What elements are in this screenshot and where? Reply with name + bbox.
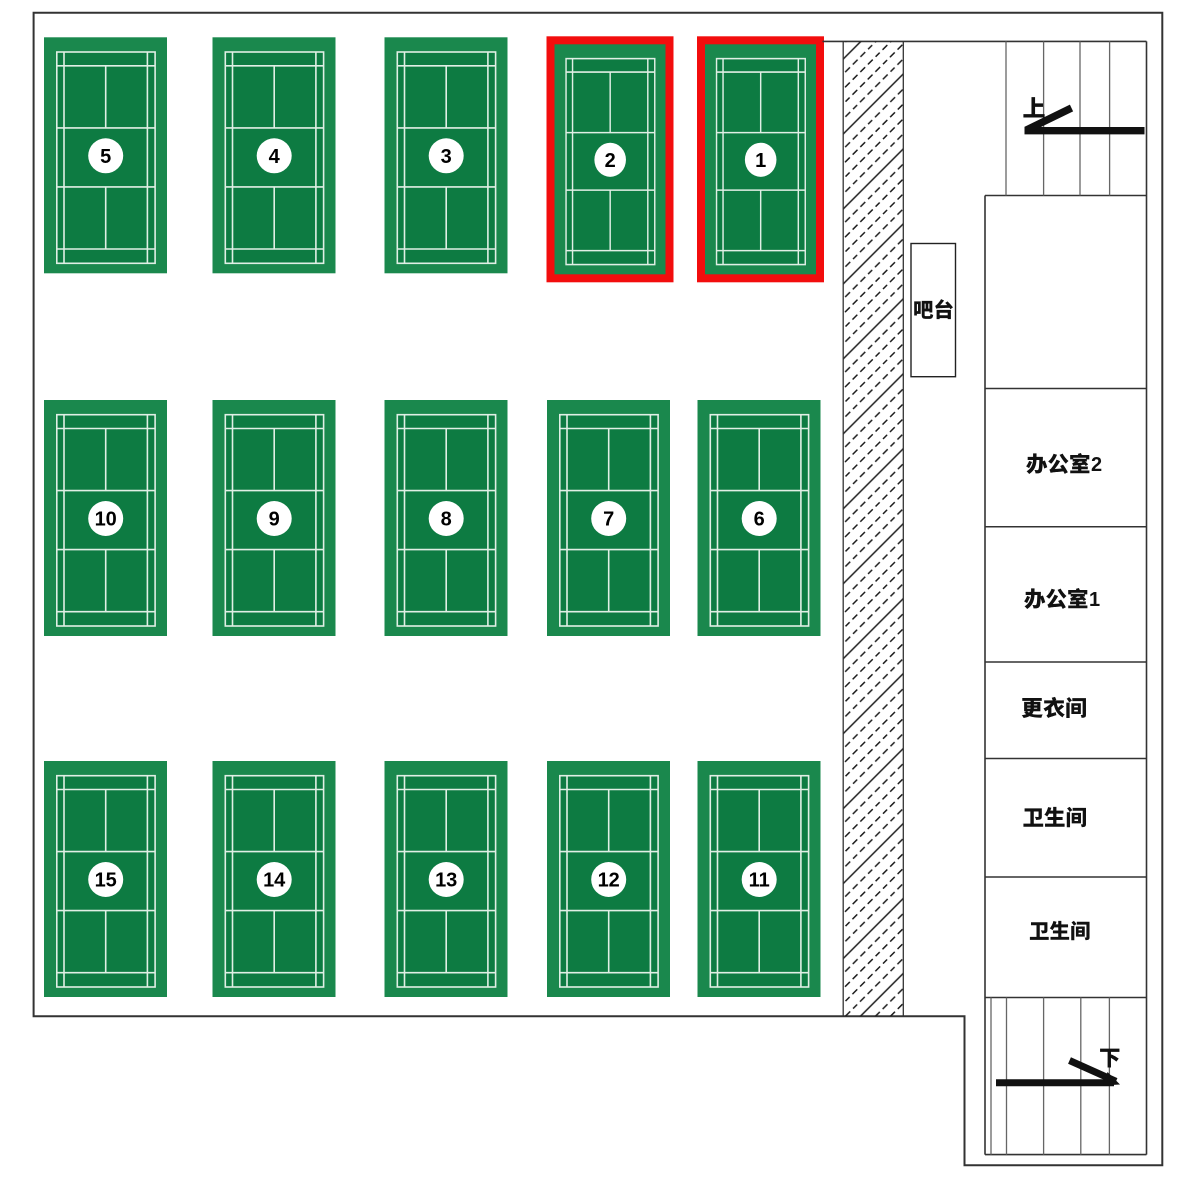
- svg-text:12: 12: [598, 870, 620, 892]
- svg-text:4: 4: [269, 146, 281, 168]
- svg-text:11: 11: [749, 870, 770, 892]
- svg-text:1: 1: [1089, 589, 1100, 611]
- svg-text:7: 7: [603, 509, 614, 531]
- svg-text:5: 5: [100, 146, 111, 168]
- svg-text:15: 15: [95, 870, 117, 892]
- svg-text:8: 8: [441, 509, 452, 531]
- svg-text:14: 14: [263, 870, 286, 892]
- svg-text:6: 6: [754, 509, 765, 531]
- svg-text:1: 1: [755, 150, 766, 172]
- svg-text:2: 2: [605, 150, 616, 172]
- svg-text:13: 13: [435, 870, 457, 892]
- svg-text:9: 9: [269, 509, 280, 531]
- svg-text:3: 3: [441, 146, 452, 168]
- svg-text:2: 2: [1091, 454, 1102, 476]
- svg-text:10: 10: [95, 509, 117, 531]
